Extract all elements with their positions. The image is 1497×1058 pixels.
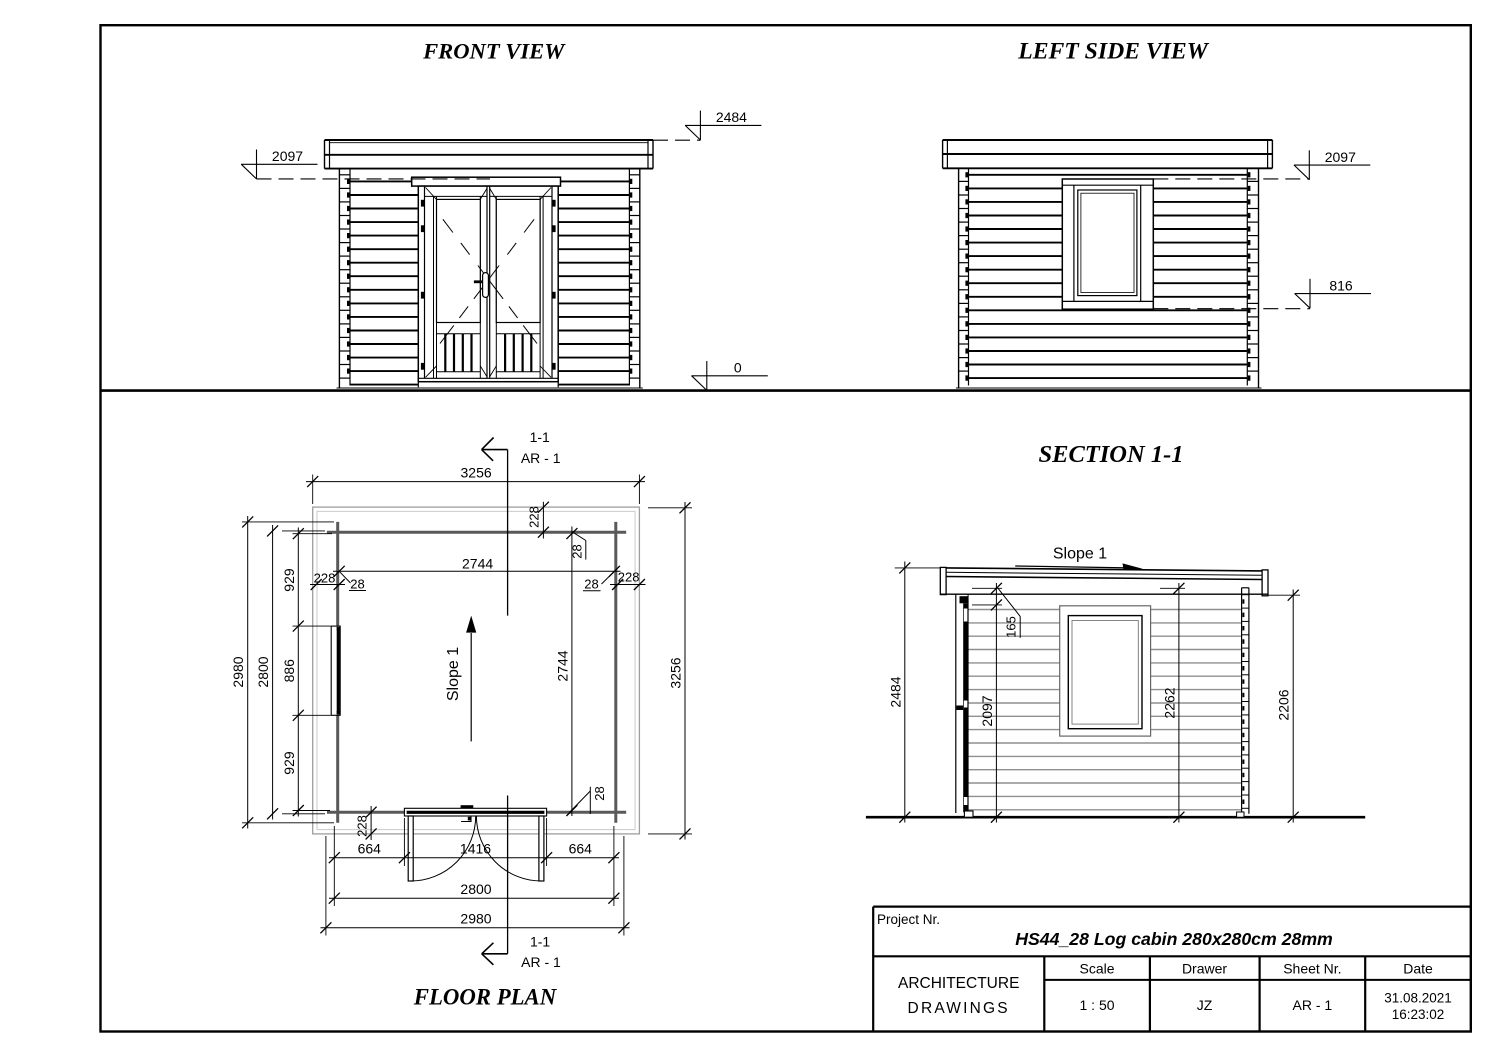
- svg-text:2484: 2484: [887, 676, 903, 707]
- svg-text:16:23:02: 16:23:02: [1392, 1007, 1445, 1022]
- svg-text:LEFT SIDE VIEW: LEFT SIDE VIEW: [1017, 38, 1209, 64]
- svg-text:2800: 2800: [255, 656, 271, 687]
- svg-text:FRONT VIEW: FRONT VIEW: [422, 38, 566, 63]
- svg-text:2744: 2744: [462, 555, 493, 571]
- svg-text:228: 228: [527, 506, 542, 528]
- svg-text:929: 929: [281, 568, 297, 592]
- svg-text:Sheet Nr.: Sheet Nr.: [1283, 961, 1341, 977]
- svg-text:Date: Date: [1403, 961, 1433, 977]
- svg-text:28: 28: [592, 786, 607, 800]
- svg-text:2980: 2980: [460, 911, 491, 927]
- svg-text:Drawer: Drawer: [1182, 961, 1227, 977]
- svg-text:28: 28: [584, 577, 598, 592]
- svg-text:3256: 3256: [461, 465, 492, 481]
- svg-text:1-1: 1-1: [530, 934, 550, 950]
- svg-text:AR - 1: AR - 1: [521, 450, 561, 466]
- svg-text:1416: 1416: [460, 841, 491, 857]
- svg-text:228: 228: [618, 569, 640, 584]
- svg-text:2097: 2097: [272, 148, 303, 164]
- svg-text:886: 886: [281, 659, 297, 683]
- svg-text:Project Nr.: Project Nr.: [877, 912, 940, 927]
- svg-text:31.08.2021: 31.08.2021: [1384, 991, 1452, 1006]
- svg-text:2206: 2206: [1276, 689, 1292, 720]
- svg-text:Slope 1: Slope 1: [1053, 546, 1107, 563]
- svg-text:JZ: JZ: [1197, 997, 1213, 1013]
- svg-text:2262: 2262: [1161, 687, 1177, 718]
- svg-text:AR - 1: AR - 1: [1293, 997, 1333, 1013]
- svg-text:Slope 1: Slope 1: [445, 647, 462, 701]
- svg-text:0: 0: [734, 360, 742, 376]
- svg-text:1-1: 1-1: [530, 429, 550, 445]
- svg-text:2097: 2097: [1325, 149, 1356, 165]
- svg-text:2980: 2980: [230, 656, 246, 687]
- svg-text:3256: 3256: [668, 657, 684, 688]
- svg-text:165: 165: [1004, 616, 1019, 638]
- svg-text:228: 228: [314, 570, 336, 585]
- svg-text:ARCHITECTURE: ARCHITECTURE: [898, 975, 1019, 992]
- svg-text:FLOOR PLAN: FLOOR PLAN: [413, 985, 558, 1010]
- svg-text:AR - 1: AR - 1: [521, 954, 561, 970]
- svg-text:1 : 50: 1 : 50: [1079, 997, 1114, 1013]
- svg-text:28: 28: [350, 576, 364, 591]
- svg-text:2744: 2744: [554, 650, 570, 681]
- svg-text:SECTION 1-1: SECTION 1-1: [1039, 441, 1184, 468]
- svg-text:2484: 2484: [716, 109, 747, 125]
- svg-text:228: 228: [354, 815, 369, 837]
- svg-text:816: 816: [1329, 277, 1353, 293]
- svg-text:929: 929: [281, 751, 297, 775]
- svg-text:664: 664: [358, 841, 382, 857]
- svg-text:2097: 2097: [979, 695, 995, 726]
- svg-text:DRAWINGS: DRAWINGS: [908, 1000, 1010, 1017]
- svg-text:HS44_28 Log cabin 280x280cm 28: HS44_28 Log cabin 280x280cm 28mm: [1015, 929, 1333, 949]
- svg-text:664: 664: [569, 841, 593, 857]
- svg-text:Scale: Scale: [1079, 961, 1114, 977]
- svg-text:2800: 2800: [460, 881, 491, 897]
